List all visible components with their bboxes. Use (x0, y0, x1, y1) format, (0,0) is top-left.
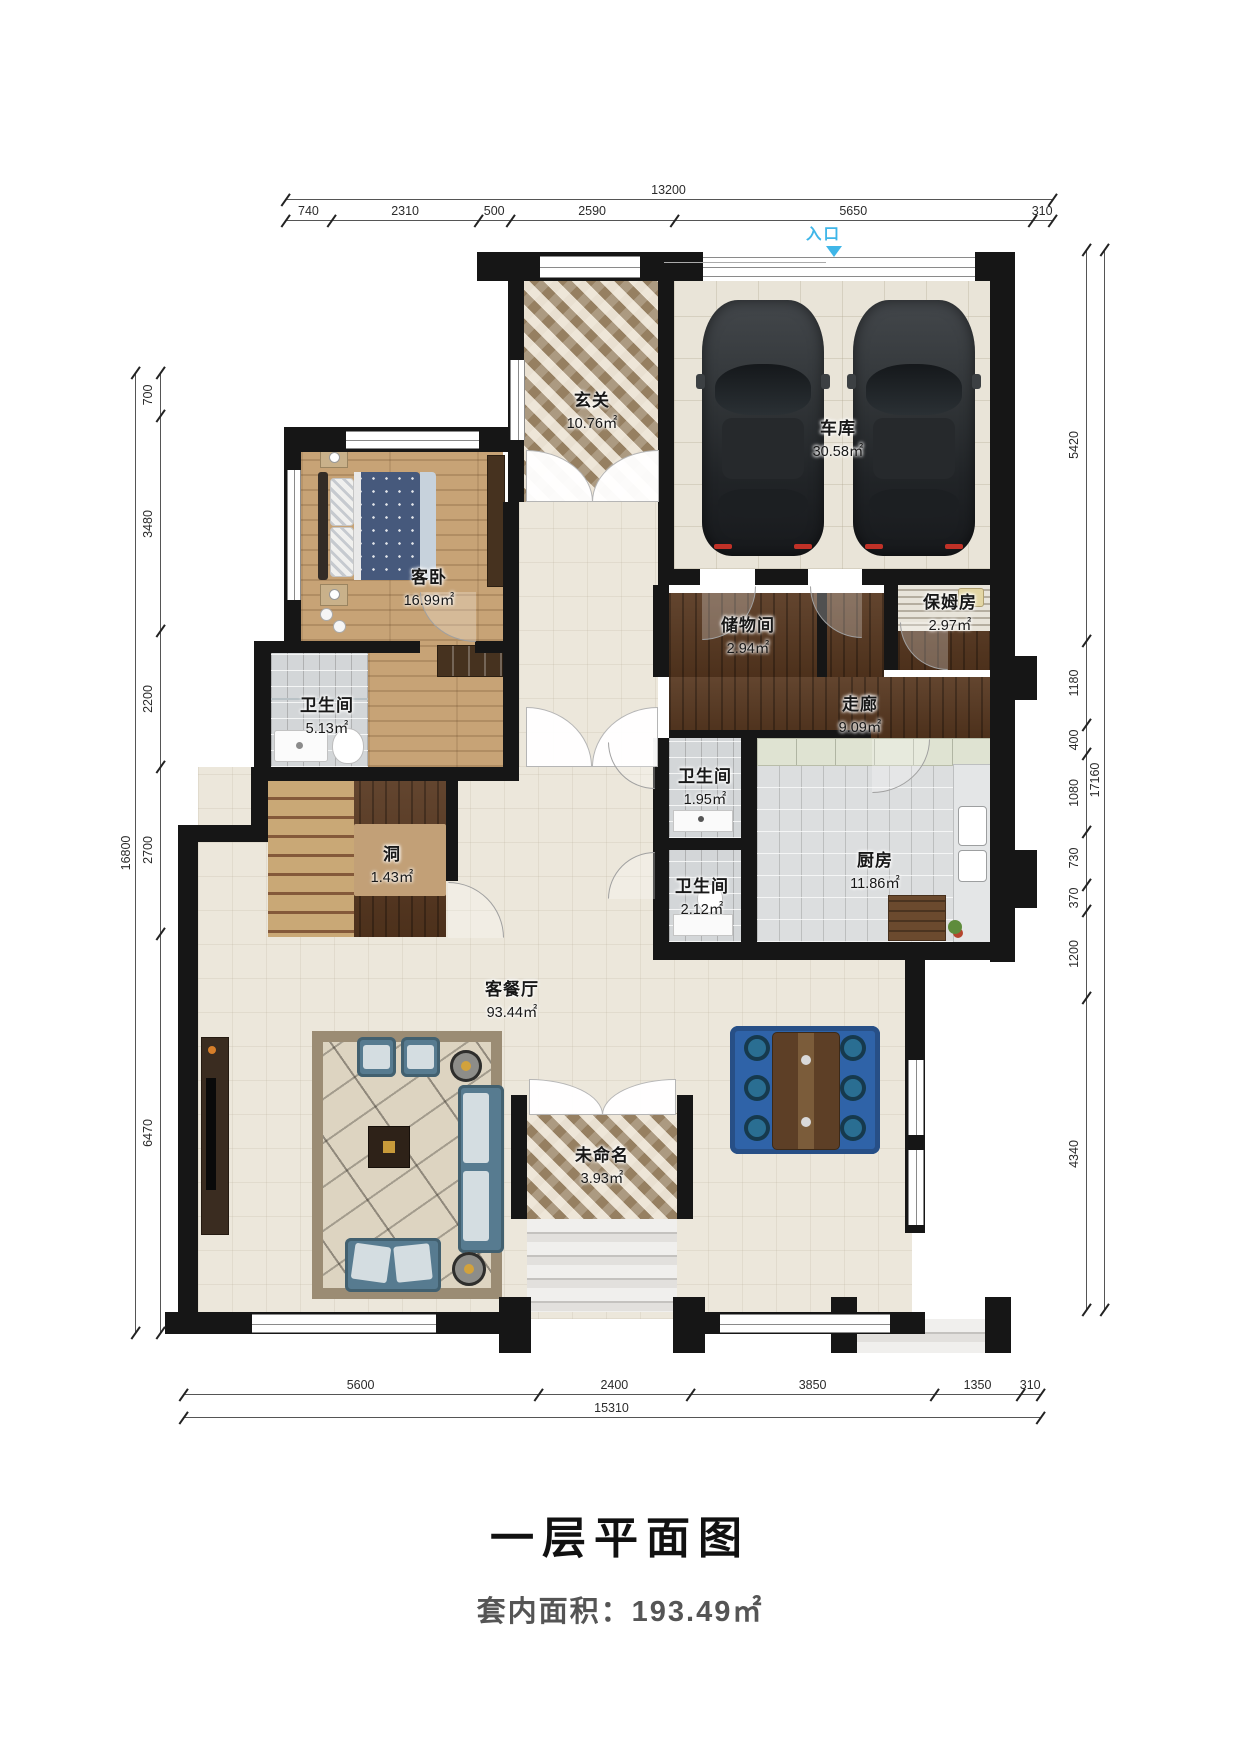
dim-segment: 2590 (510, 200, 674, 221)
terrace-column (985, 1297, 1011, 1353)
dim-segment: 1350 (935, 1374, 1021, 1395)
entrance-label: 入口 (806, 222, 841, 244)
dining-chair (744, 1035, 770, 1061)
dimension-chain-top: 13200740231050025905650310 (285, 176, 1052, 220)
car-mirror (847, 374, 856, 389)
wall-segment (178, 825, 268, 842)
sofa-three-seat (458, 1085, 504, 1253)
dim-segment: 5600 (183, 1374, 538, 1395)
dining-chair (840, 1115, 866, 1141)
room-label-living-dining: 客餐厅93.44㎡ (432, 975, 592, 1022)
car-rear-window (718, 489, 808, 517)
car-taillight (945, 544, 963, 549)
armchair (357, 1037, 396, 1077)
porch-steps (527, 1219, 677, 1312)
area-summary: 套内面积：193.49㎡ (0, 1588, 1240, 1630)
coffee-table (368, 1126, 410, 1168)
wall-segment (669, 730, 741, 738)
dim-segment: 5420 (1062, 250, 1087, 640)
wall-segment (503, 502, 519, 767)
dim-segment: 370 (1062, 884, 1087, 911)
kitchen-sink (958, 806, 987, 846)
dim-segment: 4340 (1062, 997, 1087, 1310)
window (908, 1060, 924, 1135)
kitchen-sink (958, 850, 987, 882)
page-title: 一层平面图 (0, 1502, 1240, 1566)
car-windshield (866, 364, 961, 415)
faucet (296, 742, 303, 749)
dim-total: 13200 (285, 179, 1052, 200)
wall-segment (254, 641, 420, 653)
window (287, 470, 301, 600)
table-lamp (329, 589, 340, 600)
armchair (401, 1037, 440, 1077)
dim-segment: 2700 (136, 767, 161, 934)
room-label-kitchen: 厨房11.86㎡ (795, 846, 955, 893)
dim-segment: 1080 (1062, 754, 1087, 832)
room-label-bath-main: 卫生间5.13㎡ (247, 691, 407, 738)
dim-segment: 3850 (690, 1374, 934, 1395)
wall-segment (755, 569, 808, 585)
wall-segment (862, 569, 1015, 585)
dimension-chain-right: 5420118040010807303701200434017160 (1062, 250, 1105, 1310)
dim-segment: 5650 (674, 200, 1032, 221)
entrance-leader-line (664, 262, 826, 263)
dim-segment: 3480 (136, 416, 161, 631)
dim-segment: 730 (1062, 832, 1087, 885)
car-taillight (714, 544, 732, 549)
dim-segment: 2310 (332, 200, 478, 221)
wall-segment (669, 838, 741, 850)
dim-segment: 740 (285, 200, 332, 221)
room-label-storage: 储物间2.94㎡ (668, 611, 828, 658)
car-rear-window (869, 489, 959, 517)
car-taillight (794, 544, 812, 549)
stool (333, 620, 346, 633)
room-label-nanny: 保姆房2.97㎡ (870, 588, 1030, 635)
garage-door (703, 257, 975, 277)
faucet (698, 816, 704, 822)
dim-segment: 2400 (538, 1374, 690, 1395)
window (720, 1314, 890, 1333)
room-label-bath-mid: 卫生间2.12㎡ (622, 872, 782, 919)
car-windshield (715, 364, 810, 415)
window (346, 431, 479, 449)
floor-plan-page: 入口 玄关10.76㎡ 车库30.58㎡ 客卧16.99㎡ 卫生间5.13㎡ 储… (0, 0, 1240, 1754)
dimension-chain-left: 168007003480220027006470 (117, 373, 160, 1333)
wall-segment (658, 281, 674, 585)
porch-column (673, 1297, 705, 1353)
dim-segment: 310 (1020, 1374, 1040, 1395)
car-mirror (821, 374, 830, 389)
side-table-lamp (450, 1050, 482, 1082)
room-label-unnamed: 未命名3.93㎡ (522, 1141, 682, 1188)
car-taillight (865, 544, 883, 549)
room-label-garage: 车库30.58㎡ (758, 414, 918, 461)
wall-segment (653, 942, 1015, 960)
tv-screen (206, 1078, 216, 1190)
wall-segment (254, 767, 519, 781)
dim-segment: 400 (1062, 725, 1087, 754)
dim-segment: 1200 (1062, 911, 1087, 997)
kitchen-cart (888, 895, 946, 941)
car-mirror (696, 374, 705, 389)
side-table-lamp (452, 1252, 486, 1286)
decor-item (208, 1046, 216, 1054)
dining-table (772, 1032, 840, 1150)
wall-pillar (1005, 656, 1037, 700)
dining-chair (744, 1115, 770, 1141)
dimension-chain-bottom: 560024003850135031015310 (183, 1374, 1040, 1418)
car-mirror (972, 374, 981, 389)
dining-chair (744, 1075, 770, 1101)
room-label-corridor: 走廊9.09㎡ (780, 690, 940, 737)
dim-segment: 2200 (136, 631, 161, 767)
window (908, 1150, 924, 1225)
bed-headboard (318, 472, 328, 580)
dim-segment: 1180 (1062, 640, 1087, 725)
wall-segment (653, 585, 669, 677)
dining-chair (840, 1035, 866, 1061)
entrance-arrow-icon (826, 246, 842, 257)
stool (320, 608, 333, 621)
dim-total: 17160 (1086, 250, 1105, 1310)
dim-total: 16800 (117, 373, 136, 1333)
window (252, 1314, 436, 1333)
dim-segment: 700 (136, 373, 161, 416)
porch-column (499, 1297, 531, 1353)
wall-segment (178, 842, 198, 1319)
sofa-two-seat (345, 1238, 441, 1292)
dim-segment: 500 (478, 200, 510, 221)
vegetable-basket (948, 920, 962, 934)
wall-pillar (1005, 850, 1037, 908)
room-label-stair-void: 洞1.43㎡ (312, 840, 472, 887)
dining-chair (840, 1075, 866, 1101)
room-label-bath-small: 卫生间1.95㎡ (625, 762, 785, 809)
dim-segment: 310 (1032, 200, 1052, 221)
entry-door-window (540, 256, 640, 278)
bed-pillow (330, 478, 354, 526)
room-label-guest-bedroom: 客卧16.99㎡ (349, 563, 509, 610)
room-label-entry: 玄关10.76㎡ (512, 386, 672, 433)
dim-segment: 6470 (136, 934, 161, 1333)
wall-segment (658, 569, 700, 585)
wall-segment (251, 767, 268, 825)
table-lamp (329, 452, 340, 463)
dim-total: 15310 (183, 1397, 1040, 1418)
